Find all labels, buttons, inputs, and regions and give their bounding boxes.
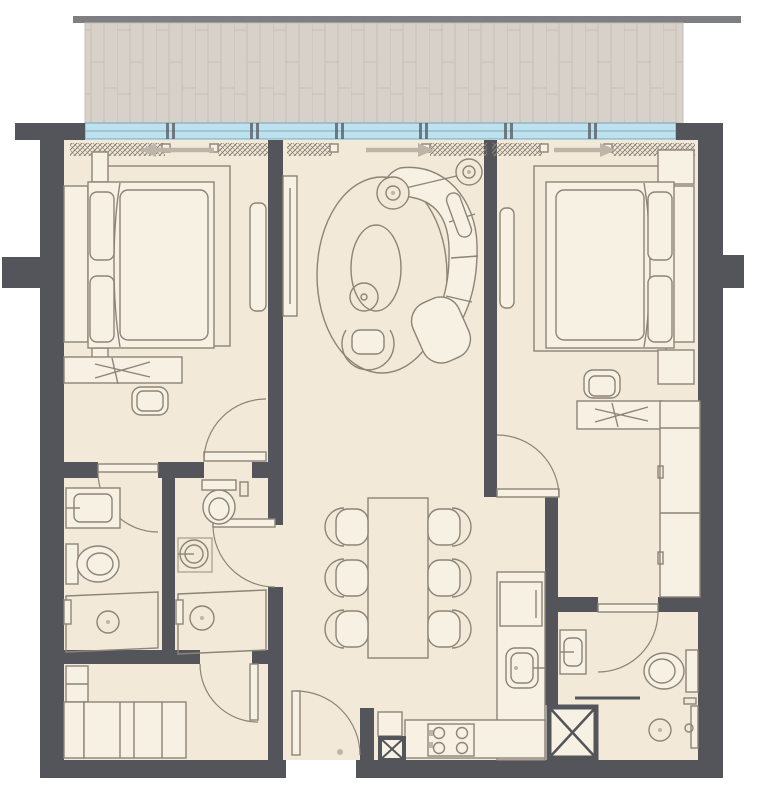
pillow bbox=[90, 192, 114, 260]
door-leaf bbox=[204, 452, 266, 461]
headboard bbox=[64, 186, 88, 342]
floor-plan-drawing bbox=[0, 0, 759, 795]
nightstand bbox=[92, 152, 108, 182]
shower-fixture bbox=[691, 706, 698, 748]
balcony-deck bbox=[85, 23, 683, 123]
curtain bbox=[430, 143, 487, 156]
toilet bbox=[66, 544, 119, 584]
counter-return bbox=[378, 712, 402, 736]
wardrobe-panel bbox=[250, 203, 266, 311]
dining-area bbox=[325, 498, 471, 658]
balcony bbox=[73, 16, 741, 123]
mattress bbox=[84, 702, 186, 758]
service-shaft-kitchen bbox=[380, 738, 404, 760]
curtain-bracket bbox=[330, 144, 338, 152]
vanity-sink bbox=[66, 488, 120, 528]
shower-fixture bbox=[64, 600, 71, 624]
door-leaf bbox=[250, 664, 258, 720]
pillow bbox=[648, 276, 672, 342]
door-leaf bbox=[598, 604, 658, 612]
service-shaft-bath bbox=[549, 707, 596, 758]
headboard bbox=[672, 186, 694, 342]
cooktop bbox=[428, 724, 474, 756]
floor-plan-page bbox=[0, 0, 759, 795]
curtain bbox=[287, 143, 332, 156]
shower-fixture bbox=[176, 600, 183, 624]
door-leaf bbox=[497, 489, 559, 497]
kitchen-counter-bottom bbox=[405, 720, 545, 758]
parapet-bar bbox=[73, 16, 741, 23]
curtain-bracket bbox=[540, 144, 548, 152]
window-wall bbox=[85, 123, 676, 139]
armchair-cushion bbox=[352, 330, 384, 354]
mirror-panel bbox=[500, 208, 514, 308]
headboard bbox=[64, 702, 84, 758]
pillow bbox=[648, 192, 672, 260]
pillow bbox=[90, 276, 114, 342]
wardrobe bbox=[658, 401, 700, 597]
nightstand bbox=[658, 350, 694, 384]
curtain bbox=[218, 143, 268, 156]
nightstand bbox=[658, 150, 694, 184]
vanity-sink bbox=[560, 630, 586, 674]
door-leaf bbox=[98, 464, 158, 472]
single-bed bbox=[64, 702, 186, 758]
curtain bbox=[492, 143, 542, 156]
dining-table bbox=[368, 498, 428, 658]
door-leaf bbox=[292, 691, 300, 755]
